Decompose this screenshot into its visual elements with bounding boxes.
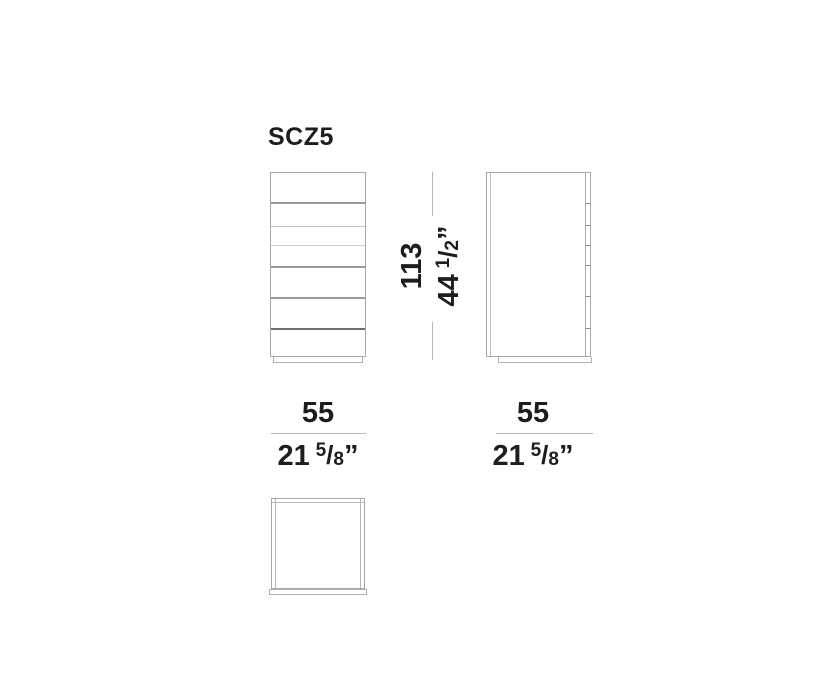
drawer-gap-tick	[585, 245, 590, 246]
drawer-divider	[271, 297, 365, 299]
panel-thickness-line	[272, 502, 364, 503]
depth-dimension-line	[496, 433, 593, 434]
panel-thickness-line	[360, 499, 361, 588]
top-view-front-strip	[269, 589, 367, 595]
drawer-gap-tick	[585, 203, 590, 204]
drawer-divider	[271, 202, 365, 204]
drawer-gap-tick	[585, 296, 590, 297]
drawer-divider	[271, 245, 365, 246]
depth-inch-value: 21 5/8”	[463, 436, 603, 475]
panel-thickness-line	[275, 499, 276, 588]
side-plinth	[498, 357, 592, 363]
product-title: SCZ5	[268, 123, 334, 152]
height-cm-value: 113	[397, 206, 427, 326]
drawer-divider	[271, 266, 365, 268]
front-plinth	[273, 357, 363, 363]
height-dimension-line	[432, 322, 433, 360]
top-view	[271, 498, 365, 589]
depth-cm-value: 55	[473, 398, 593, 428]
width-inch-value: 21 5/8”	[248, 436, 388, 475]
side-view	[486, 172, 591, 357]
drawer-gap-tick	[585, 265, 590, 266]
spec-sheet: SCZ5 113 44 1/2” 55 21 5/8” 55	[0, 0, 840, 679]
drawer-divider	[271, 226, 365, 227]
drawer-gap-tick	[585, 328, 590, 329]
height-dimension-label: 113 44 1/2”	[401, 206, 465, 326]
width-cm-value: 55	[258, 398, 378, 428]
back-panel-line	[490, 173, 491, 356]
front-view	[270, 172, 366, 357]
height-inch-value: 44 1/2”	[427, 206, 470, 326]
drawer-gap-tick	[585, 225, 590, 226]
width-dimension-line	[271, 433, 366, 434]
drawer-divider	[271, 328, 365, 330]
